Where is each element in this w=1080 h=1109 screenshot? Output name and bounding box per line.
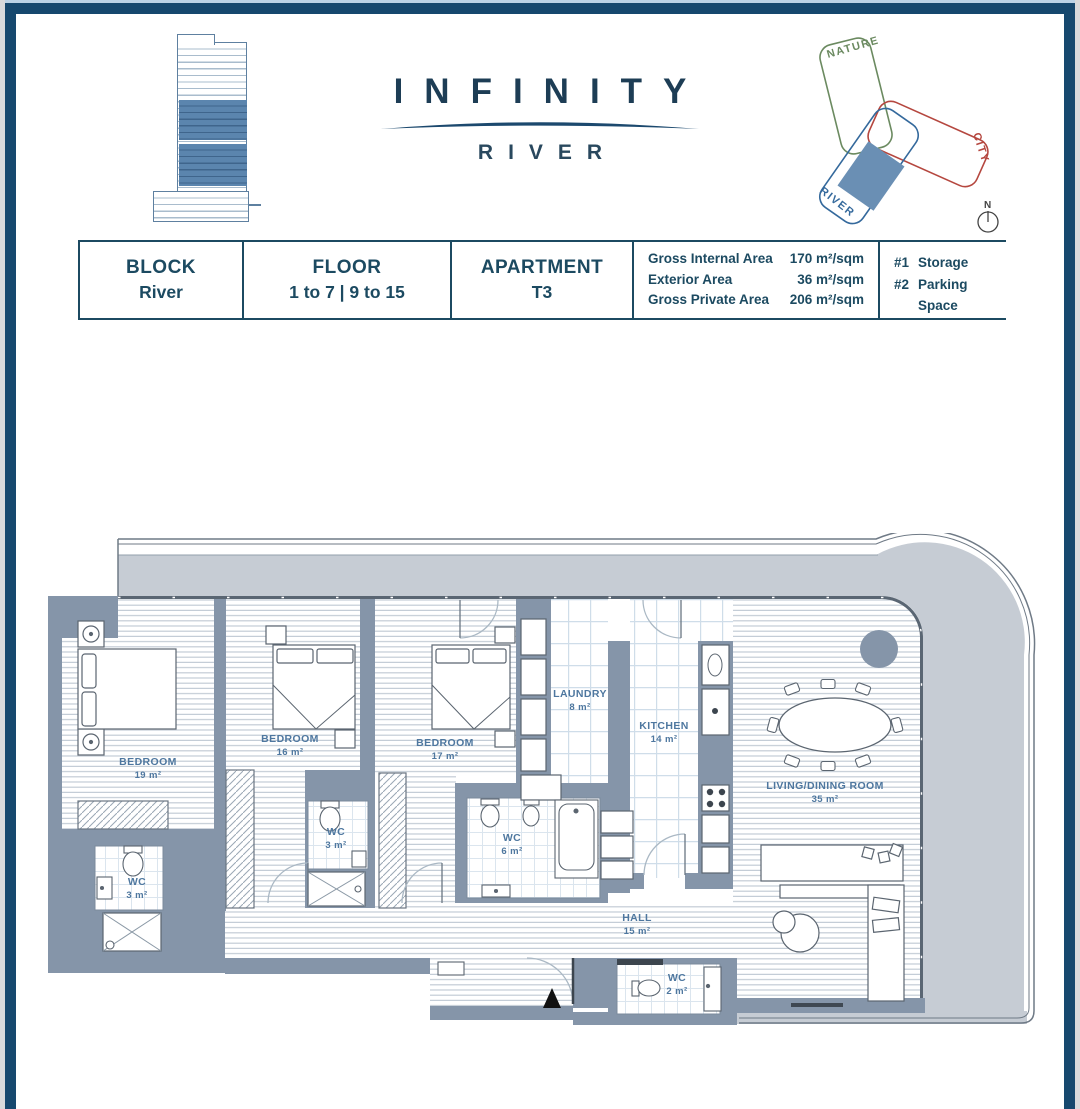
column [860, 630, 898, 668]
room-label-kitchen: KITCHEN 14 m² [639, 720, 688, 746]
allocation-value: Storage [918, 252, 968, 274]
doormat [438, 962, 464, 975]
area-row: Exterior Area 36 m²/sqm [648, 270, 864, 291]
room-label-wc-3-left: WC 3 m² [126, 876, 147, 902]
allocations-cell: #1 Storage #2 Parking Space [878, 242, 1006, 318]
brand-wordmark: INFINITY RIVER [330, 72, 750, 165]
area-label: Gross Internal Area [648, 249, 773, 270]
tower-base [153, 191, 249, 222]
allocation-number: #2 [894, 274, 909, 317]
tower-blue-band [179, 100, 247, 140]
area-label: Gross Private Area [648, 290, 769, 311]
apartment-cell: APARTMENT T3 [450, 242, 632, 318]
block-label: BLOCK [126, 257, 196, 279]
tower-base-tick [248, 204, 261, 206]
room-label-wc-6: WC 6 m² [501, 832, 522, 858]
apartment-value: T3 [532, 282, 552, 303]
floor-label: FLOOR [313, 257, 382, 279]
page-edge-left [0, 0, 5, 1109]
room-label-bedroom-19: BEDROOM 19 m² [119, 756, 177, 782]
tower-blue-band [179, 144, 247, 186]
area-row: Gross Internal Area 170 m²/sqm [648, 249, 864, 270]
area-label: Exterior Area [648, 270, 732, 291]
area-row: Gross Private Area 206 m²/sqm [648, 290, 864, 311]
swoosh-icon [375, 119, 705, 131]
allocation-row: #2 Parking Space [894, 274, 992, 317]
room-label-bedroom-16: BEDROOM 16 m² [261, 733, 319, 759]
unit-info-table: BLOCK River FLOOR 1 to 7 | 9 to 15 APART… [78, 240, 1006, 320]
room-label-laundry: LAUNDRY 8 m² [553, 688, 607, 714]
floor-cell: FLOOR 1 to 7 | 9 to 15 [242, 242, 450, 318]
room-label-wc-3-mid: WC 3 m² [325, 826, 346, 852]
site-diagram: NATURE CITY RIVER N [795, 16, 1060, 234]
room-label-living-dining: LIVING/DINING ROOM 35 m² [766, 780, 883, 806]
apartment-label: APARTMENT [481, 257, 603, 279]
brand-title: INFINITY [330, 72, 750, 112]
north-compass-icon: N [978, 200, 998, 232]
room-label-wc-2: WC 2 m² [666, 972, 687, 998]
page-edge-right [1075, 0, 1080, 1109]
floor-value: 1 to 7 | 9 to 15 [289, 282, 405, 303]
room-label-bedroom-17: BEDROOM 17 m² [416, 737, 474, 763]
allocation-row: #1 Storage [894, 252, 992, 274]
brochure-page: INFINITY RIVER NATURE CITY RIVER N BLOCK… [0, 0, 1080, 1109]
areas-cell: Gross Internal Area 170 m²/sqm Exterior … [632, 242, 878, 318]
svg-text:N: N [984, 200, 991, 211]
bedroom-3-furniture [432, 627, 515, 747]
tower-logo-icon [148, 34, 264, 220]
floor-plan-drawing [40, 533, 1040, 1048]
page-topline [5, 0, 1075, 3]
area-value: 206 m²/sqm [790, 290, 864, 311]
floor-plan: BEDROOM 19 m² BEDROOM 16 m² BEDROOM 17 m… [40, 533, 1040, 1048]
tv-console [791, 1003, 843, 1007]
brand-subtitle: RIVER [330, 141, 750, 165]
area-value: 170 m²/sqm [790, 249, 864, 270]
tower-top-notch [177, 34, 215, 45]
block-value: River [139, 282, 183, 303]
block-cell: BLOCK River [80, 242, 242, 318]
room-label-hall: HALL 15 m² [622, 912, 652, 938]
allocation-value: Parking Space [918, 274, 992, 317]
area-value: 36 m²/sqm [797, 270, 864, 291]
allocation-number: #1 [894, 252, 909, 274]
